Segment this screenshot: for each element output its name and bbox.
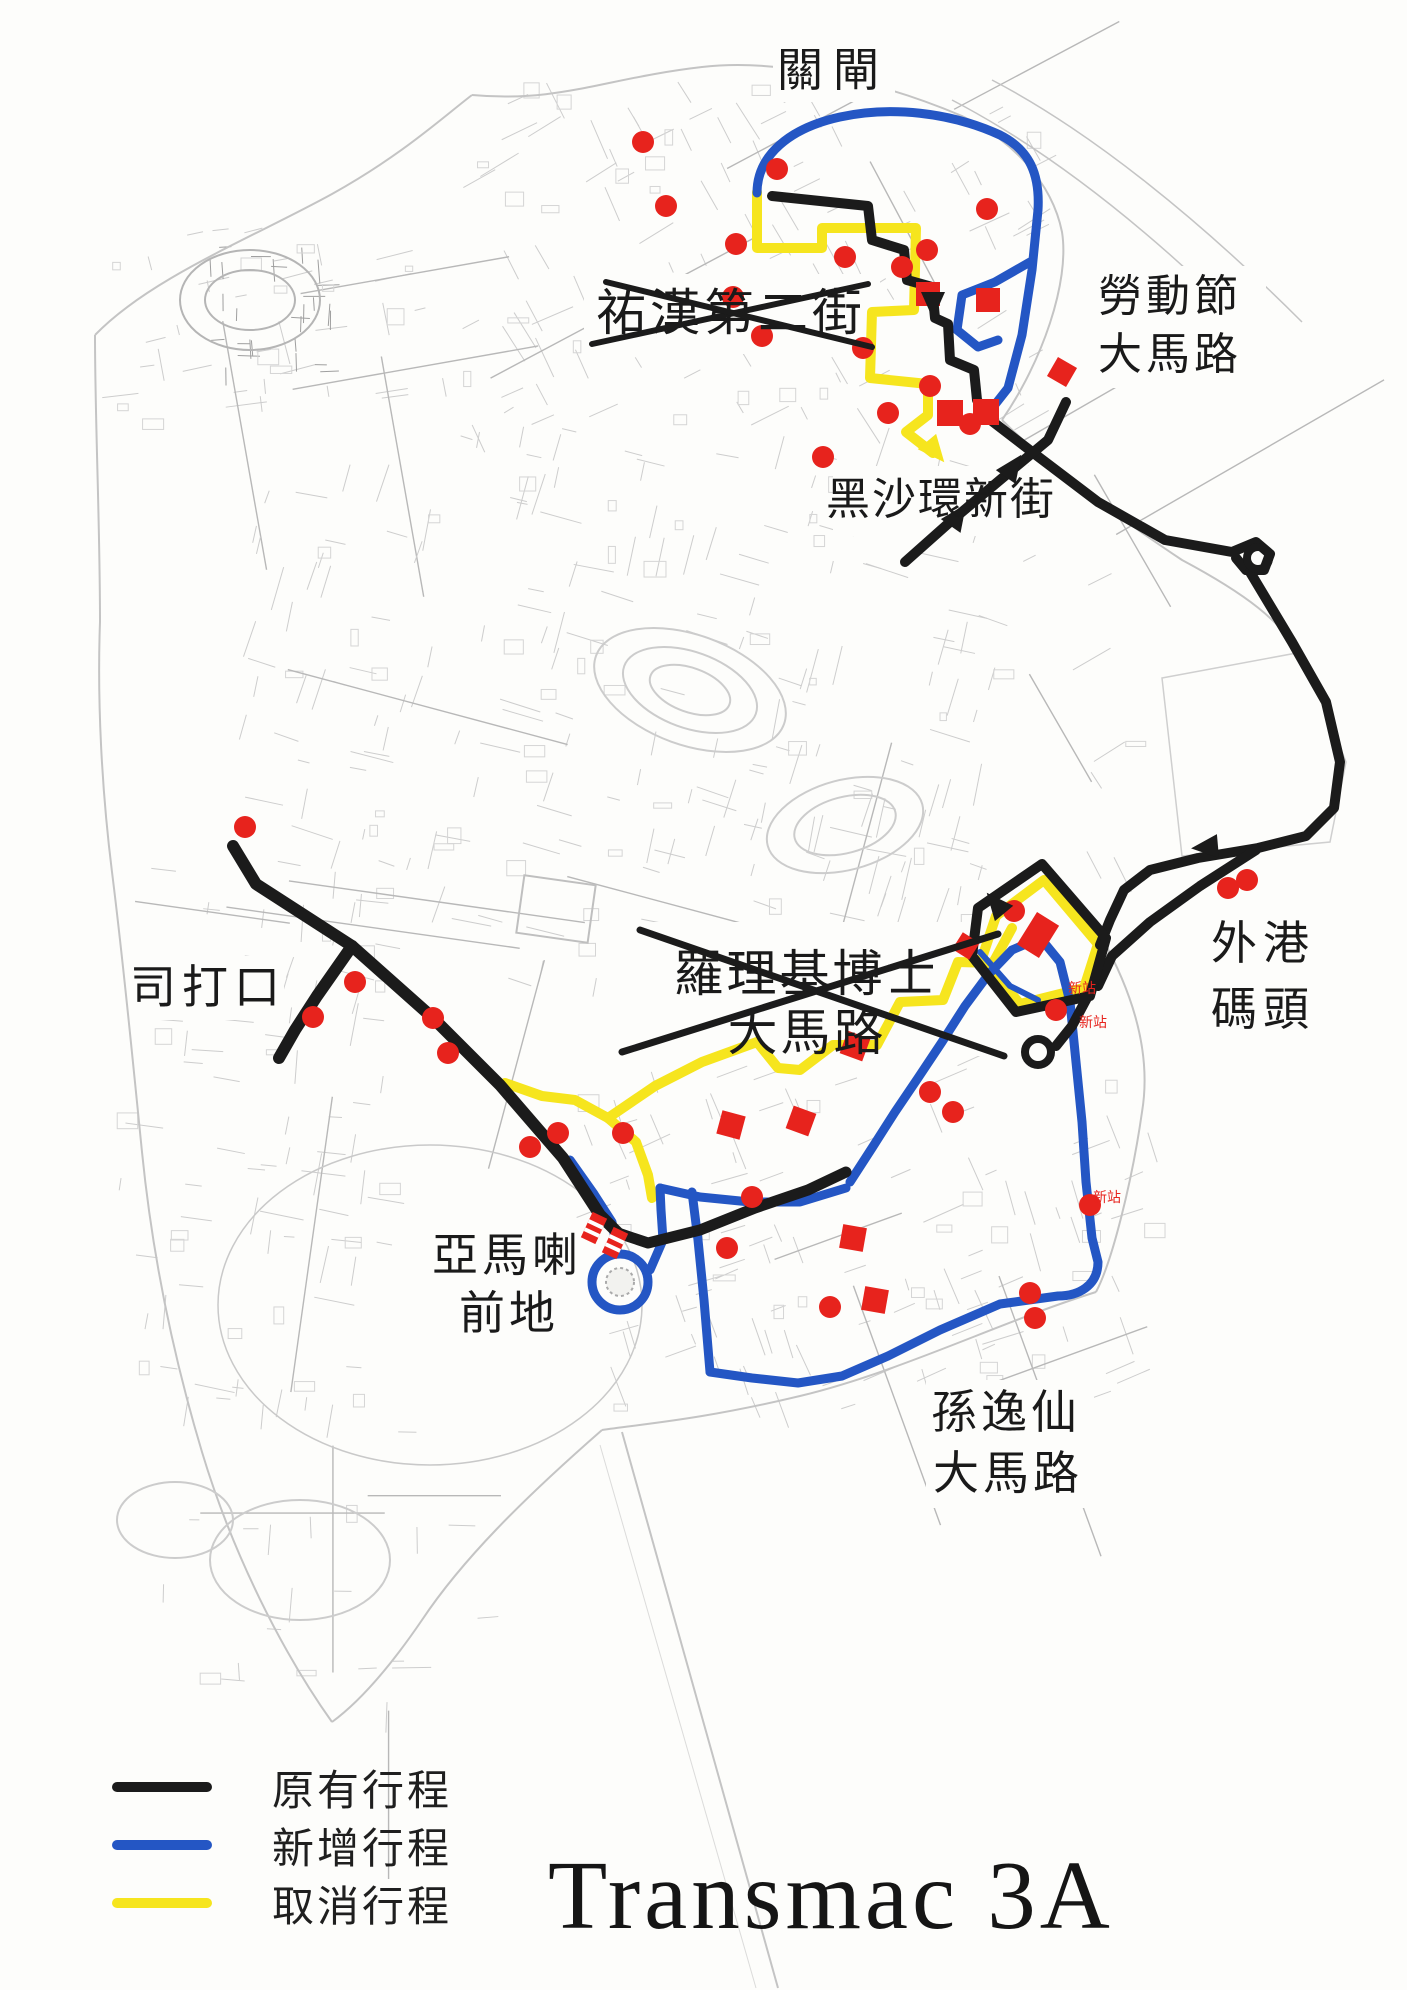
legend-row-cancelled: 取消行程 [100, 1874, 480, 1932]
legend-label-cancelled: 取消行程 [272, 1873, 452, 1934]
stop-dot-marker [766, 158, 788, 180]
stop-dot-marker [725, 233, 747, 255]
stop-dot-marker [722, 286, 744, 308]
stop-dot-marker [655, 195, 677, 217]
stop-dot-marker [942, 1101, 964, 1123]
stop-dot-marker [234, 816, 256, 838]
stop-dot-marker [422, 1007, 444, 1029]
legend-label-original: 原有行程 [272, 1757, 452, 1818]
legend-swatch-new [112, 1840, 212, 1850]
stop-dot-marker [1024, 1307, 1046, 1329]
stop-dot-marker [547, 1122, 569, 1144]
stop-dot-marker [632, 131, 654, 153]
legend-swatch-cancelled [112, 1898, 212, 1908]
stop-dot-marker [852, 337, 874, 359]
stop-block-marker [976, 288, 1000, 312]
stop-dot-marker [877, 402, 899, 424]
stop-dot-marker [812, 446, 834, 468]
route-original-reservoir-teardrop [1247, 547, 1269, 569]
legend: 原有行程 新增行程 取消行程 [100, 1758, 480, 1932]
stop-block-marker [861, 1286, 889, 1314]
stop-dot-marker [919, 375, 941, 397]
stop-dot-marker [976, 198, 998, 220]
stop-dot-marker [919, 1081, 941, 1103]
stop-block-marker [839, 1224, 867, 1252]
map-title: Transmac 3A [548, 1840, 1114, 1951]
stop-block-marker [973, 399, 999, 425]
stop-dot-marker [716, 1237, 738, 1259]
stop-dot-marker [1019, 1282, 1041, 1304]
stop-dot-marker [1236, 869, 1258, 891]
route-map-svg [0, 0, 1407, 1990]
route-original-ponte-horta-spur [279, 946, 352, 1058]
stop-block-marker [1047, 357, 1077, 387]
stop-dot-marker [612, 1122, 634, 1144]
stop-dot-marker [1045, 999, 1067, 1021]
legend-row-new: 新增行程 [100, 1816, 480, 1874]
stop-dot-marker [834, 246, 856, 268]
stop-dot-marker [751, 325, 773, 347]
stop-block-marker [937, 400, 963, 426]
legend-label-new: 新增行程 [272, 1815, 452, 1876]
stop-block-marker [716, 1110, 745, 1139]
macau-route-map-page: 關閘 祐漢第二街 勞動節 大馬路 黑沙環新街 外港 碼頭 羅理基博士 大馬路 司… [0, 0, 1407, 1990]
route-new-nape-block [692, 1192, 710, 1372]
stop-dot-marker [916, 239, 938, 261]
route-original-mini-loop [1025, 1039, 1051, 1065]
legend-swatch-original [112, 1782, 212, 1792]
stop-dot-marker [1079, 1194, 1101, 1216]
stop-dot-marker [344, 971, 366, 993]
legend-row-original: 原有行程 [100, 1758, 480, 1816]
stop-block-marker [786, 1106, 817, 1137]
stop-dot-marker [891, 256, 913, 278]
stop-dot-marker [819, 1296, 841, 1318]
stop-dot-marker [741, 1186, 763, 1208]
stop-dot-marker [302, 1006, 324, 1028]
label-backplates [136, 40, 1330, 1508]
stop-dot-marker [1217, 877, 1239, 899]
roundabout-island [606, 1268, 634, 1296]
stop-dot-marker [437, 1042, 459, 1064]
stop-dot-marker [519, 1136, 541, 1158]
